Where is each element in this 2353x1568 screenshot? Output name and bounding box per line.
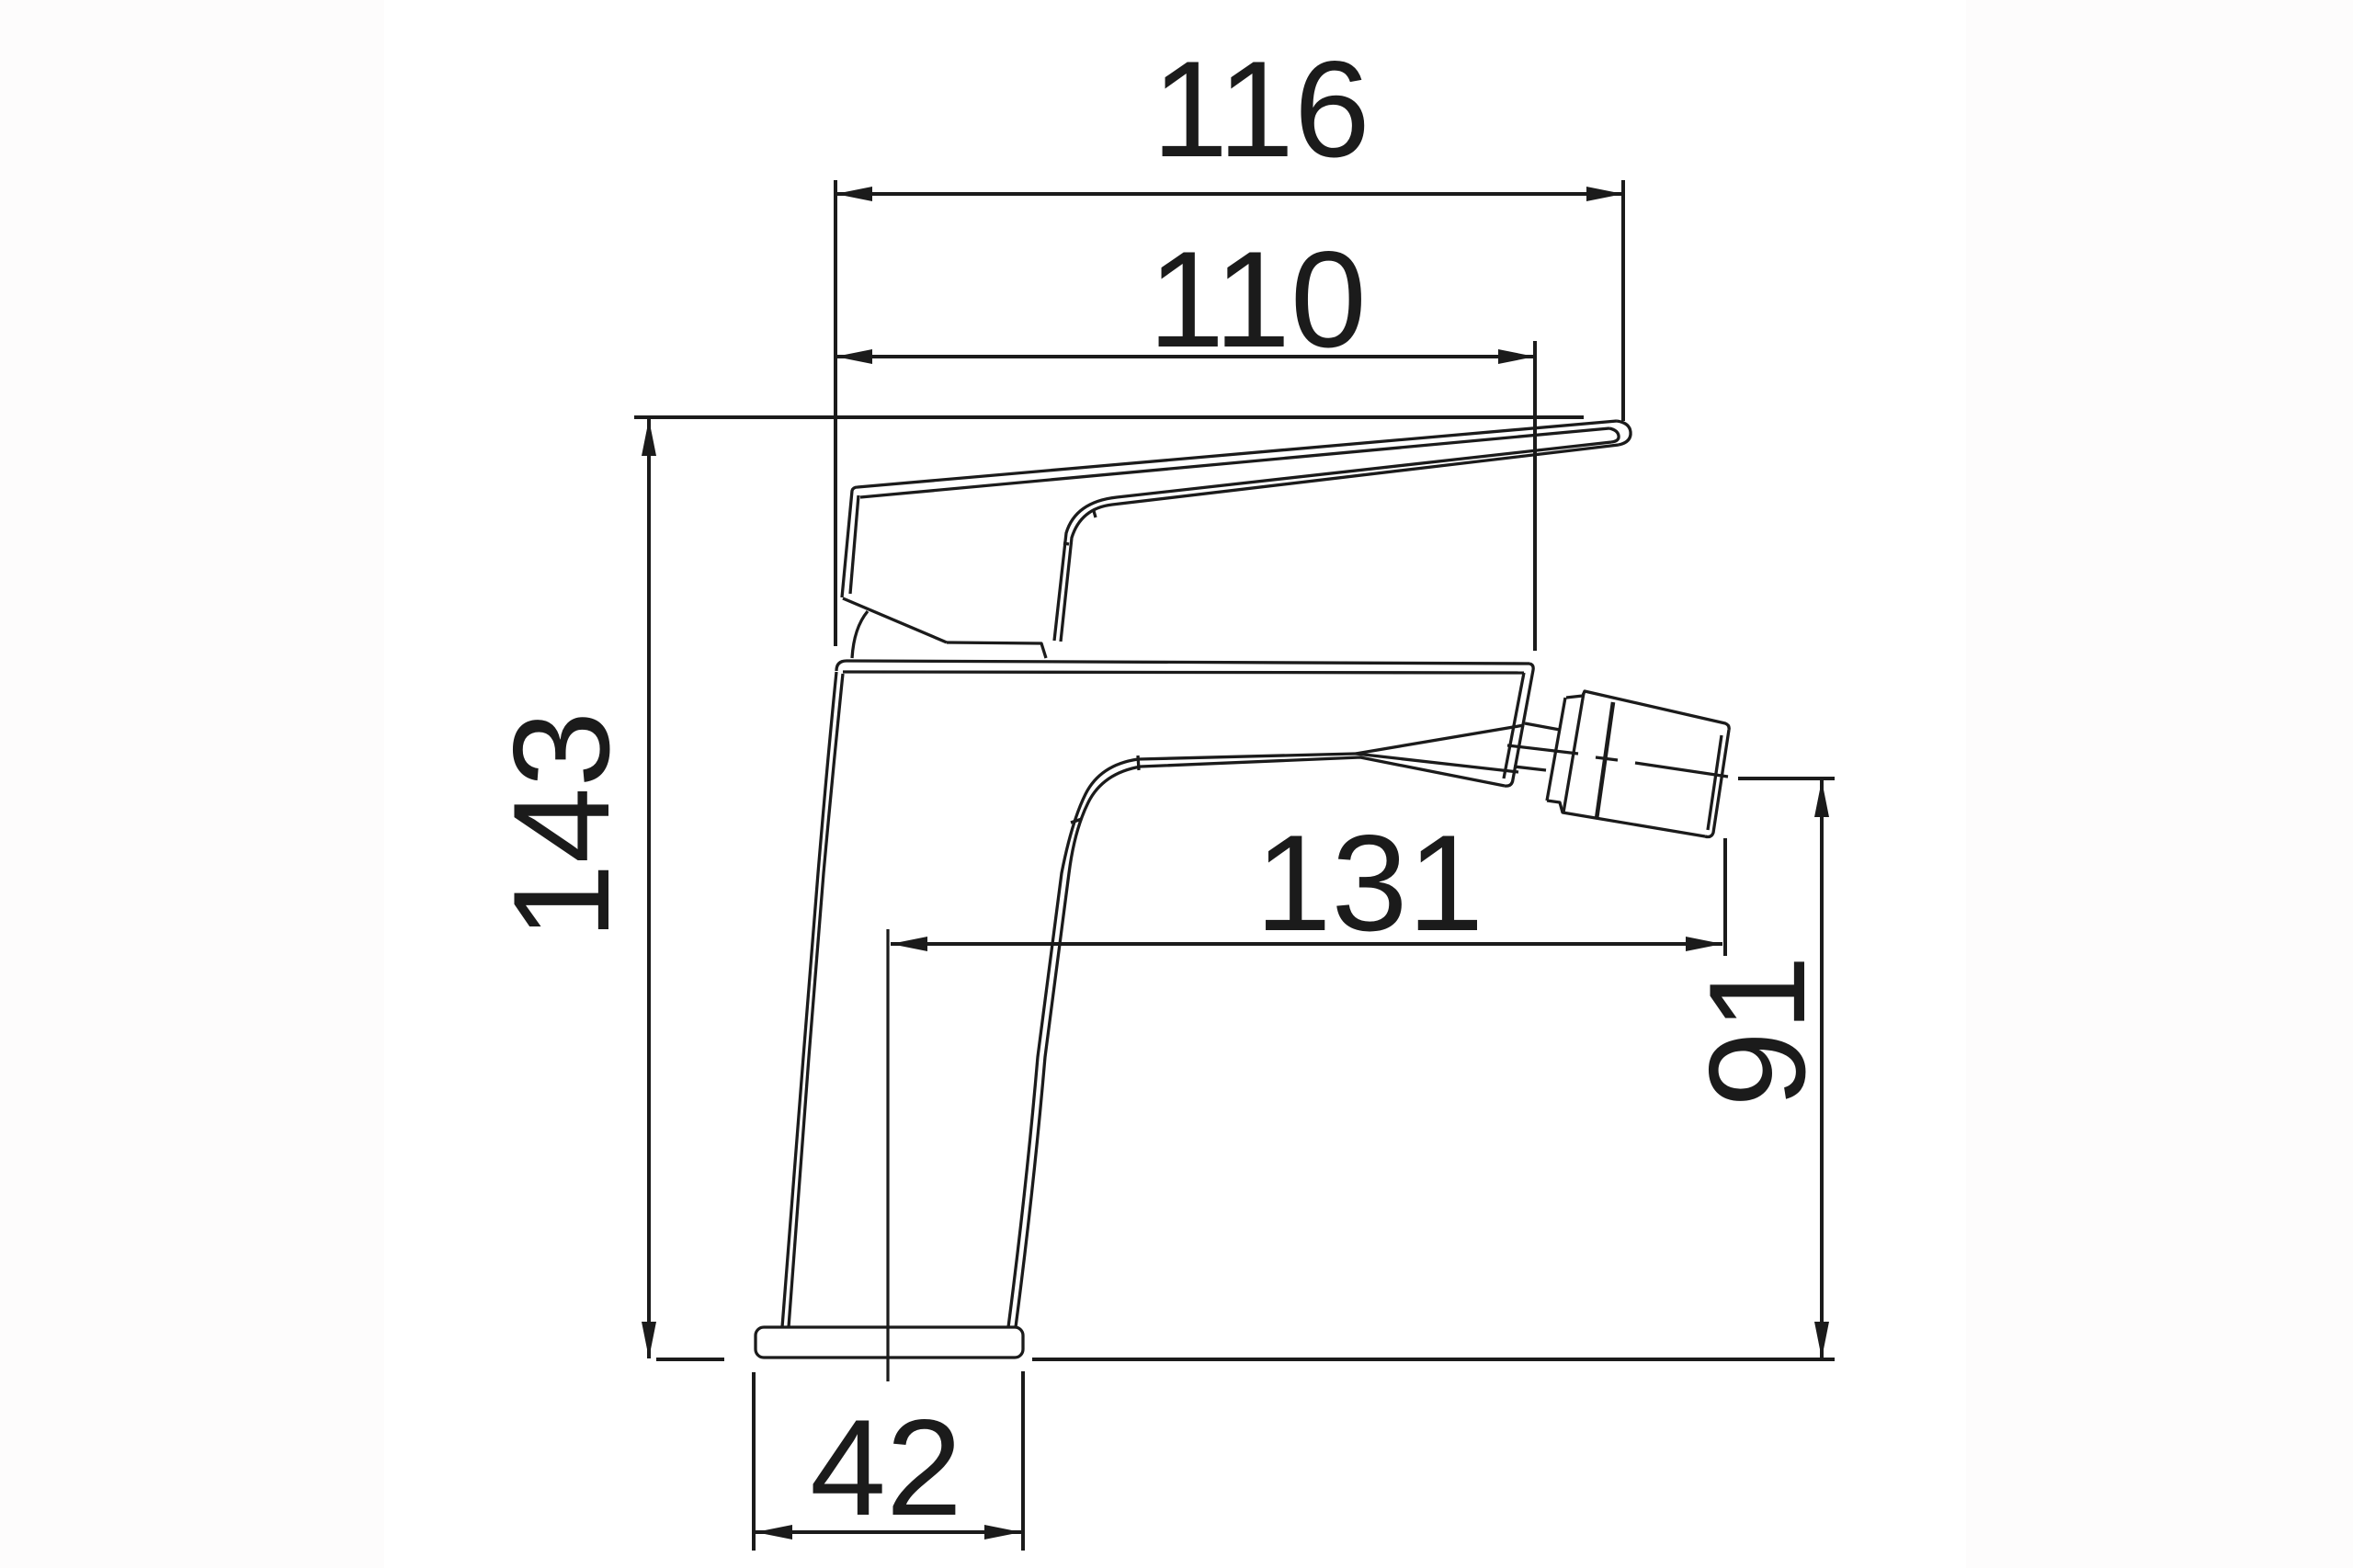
- svg-text:42: 42: [810, 1391, 962, 1544]
- svg-text:131: 131: [1256, 806, 1484, 960]
- svg-text:116: 116: [1152, 32, 1370, 186]
- svg-text:143: 143: [484, 711, 638, 940]
- svg-text:110: 110: [1148, 222, 1367, 376]
- svg-text:91: 91: [1680, 955, 1834, 1108]
